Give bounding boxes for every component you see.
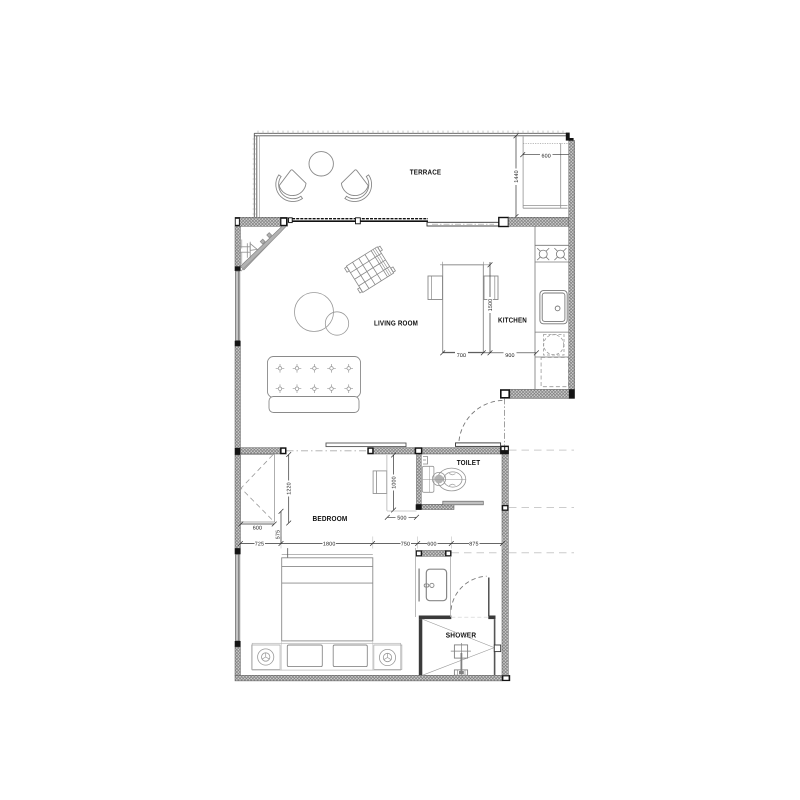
svg-text:725: 725 <box>255 542 264 548</box>
svg-text:600: 600 <box>541 153 550 159</box>
svg-text:1440: 1440 <box>514 170 520 183</box>
svg-text:875: 875 <box>469 542 478 548</box>
svg-text:500: 500 <box>397 515 406 521</box>
svg-text:TOILET: TOILET <box>457 458 481 467</box>
svg-text:LIVING ROOM: LIVING ROOM <box>374 318 418 327</box>
svg-text:575: 575 <box>275 530 281 539</box>
svg-text:700: 700 <box>457 353 466 359</box>
svg-text:KITCHEN: KITCHEN <box>498 316 527 325</box>
svg-text:1800: 1800 <box>323 542 336 548</box>
svg-text:900: 900 <box>505 353 514 359</box>
svg-text:BEDROOM: BEDROOM <box>313 514 348 523</box>
svg-text:TERRACE: TERRACE <box>410 167 442 176</box>
svg-text:1500: 1500 <box>488 299 494 312</box>
svg-text:600: 600 <box>253 526 262 532</box>
svg-text:1000: 1000 <box>391 476 397 489</box>
svg-text:600: 600 <box>427 542 436 548</box>
svg-text:1220: 1220 <box>287 482 293 495</box>
svg-text:750: 750 <box>401 542 410 548</box>
